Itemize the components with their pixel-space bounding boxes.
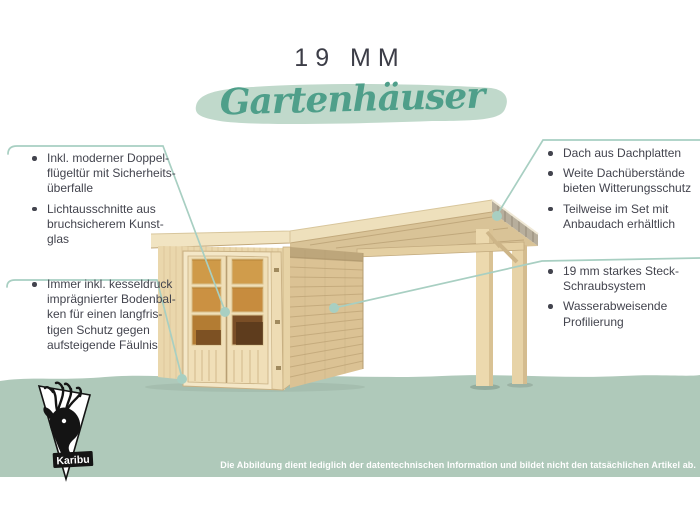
feature-line: Lichtausschnitte aus — [47, 202, 197, 217]
feature-item: Teilweise im Set mit Anbaudach erhältlic… — [543, 202, 699, 232]
feature-item: 19 mm starkes Steck- Schraubsystem — [543, 264, 699, 294]
callout-dot-door — [220, 307, 230, 317]
feature-line: Schraubsystem — [563, 279, 699, 294]
feature-line: ken für einen langfris- — [47, 307, 202, 322]
feature-line: Weite Dachüberstände — [563, 166, 699, 181]
feature-line: bieten Witterungsschutz — [563, 181, 699, 196]
feature-line: Inkl. moderner Doppel- — [47, 151, 197, 166]
feature-line: flügeltür mit Sicherheits- — [47, 166, 197, 181]
feature-item: Weite Dachüberstände bieten Witterungssc… — [543, 166, 699, 196]
feature-line: tigen Schutz gegen — [47, 323, 202, 338]
feature-item: Dach aus Dachplatten — [543, 146, 699, 161]
feature-line: glas — [47, 232, 197, 247]
headline: Gartenhäuser — [192, 76, 512, 130]
feature-line: 19 mm starkes Steck- — [563, 264, 699, 279]
feature-line: Anbaudach erhältlich — [563, 217, 699, 232]
feature-line: Immer inkl. kesseldruck — [47, 277, 202, 292]
feature-line: Profilierung — [563, 315, 699, 330]
size-label: 19 MM — [0, 44, 700, 73]
feature-line: überfalle — [47, 181, 197, 196]
feature-line: imprägnierter Bodenbal- — [47, 292, 202, 307]
canopy-posts — [476, 229, 527, 386]
features-right-top: Dach aus Dachplatten Weite Dachüberständ… — [543, 146, 699, 237]
feature-item: Wasserabweisende Profilierung — [543, 299, 699, 329]
garden-house — [151, 200, 538, 392]
feature-line: Teilweise im Set mit — [563, 202, 699, 217]
corner-trim — [283, 247, 291, 390]
feature-line: Wasserabweisende — [563, 299, 699, 314]
callout-dot-roof — [492, 211, 502, 221]
callout-dot-floor-beams — [177, 374, 187, 384]
promo-image: Karibu 19 MM Gartenhäuser Inkl. moderner… — [0, 0, 700, 525]
features-right-bottom: 19 mm starkes Steck- Schraubsystem Wasse… — [543, 264, 699, 335]
feature-item: Immer inkl. kesseldruck imprägnierter Bo… — [27, 277, 202, 353]
logo-brand-text: Karibu — [56, 454, 90, 468]
page-title: Gartenhäuser — [192, 74, 513, 124]
feature-item: Lichtausschnitte aus bruchsicherem Kunst… — [27, 202, 197, 248]
feature-line: bruchsicherem Kunst- — [47, 217, 197, 232]
features-left-bottom: Immer inkl. kesseldruck imprägnierter Bo… — [27, 277, 202, 358]
feature-line: Dach aus Dachplatten — [563, 146, 699, 161]
callout-dot-wall — [329, 303, 339, 313]
disclaimer-text: Die Abbildung dient lediglich der datent… — [220, 460, 696, 470]
feature-item: Inkl. moderner Doppel- flügeltür mit Sic… — [27, 151, 197, 197]
cabin-side-wall — [290, 247, 363, 388]
features-left-top: Inkl. moderner Doppel- flügeltür mit Sic… — [27, 151, 197, 252]
feature-line: aufsteigende Fäulnis — [47, 338, 202, 353]
